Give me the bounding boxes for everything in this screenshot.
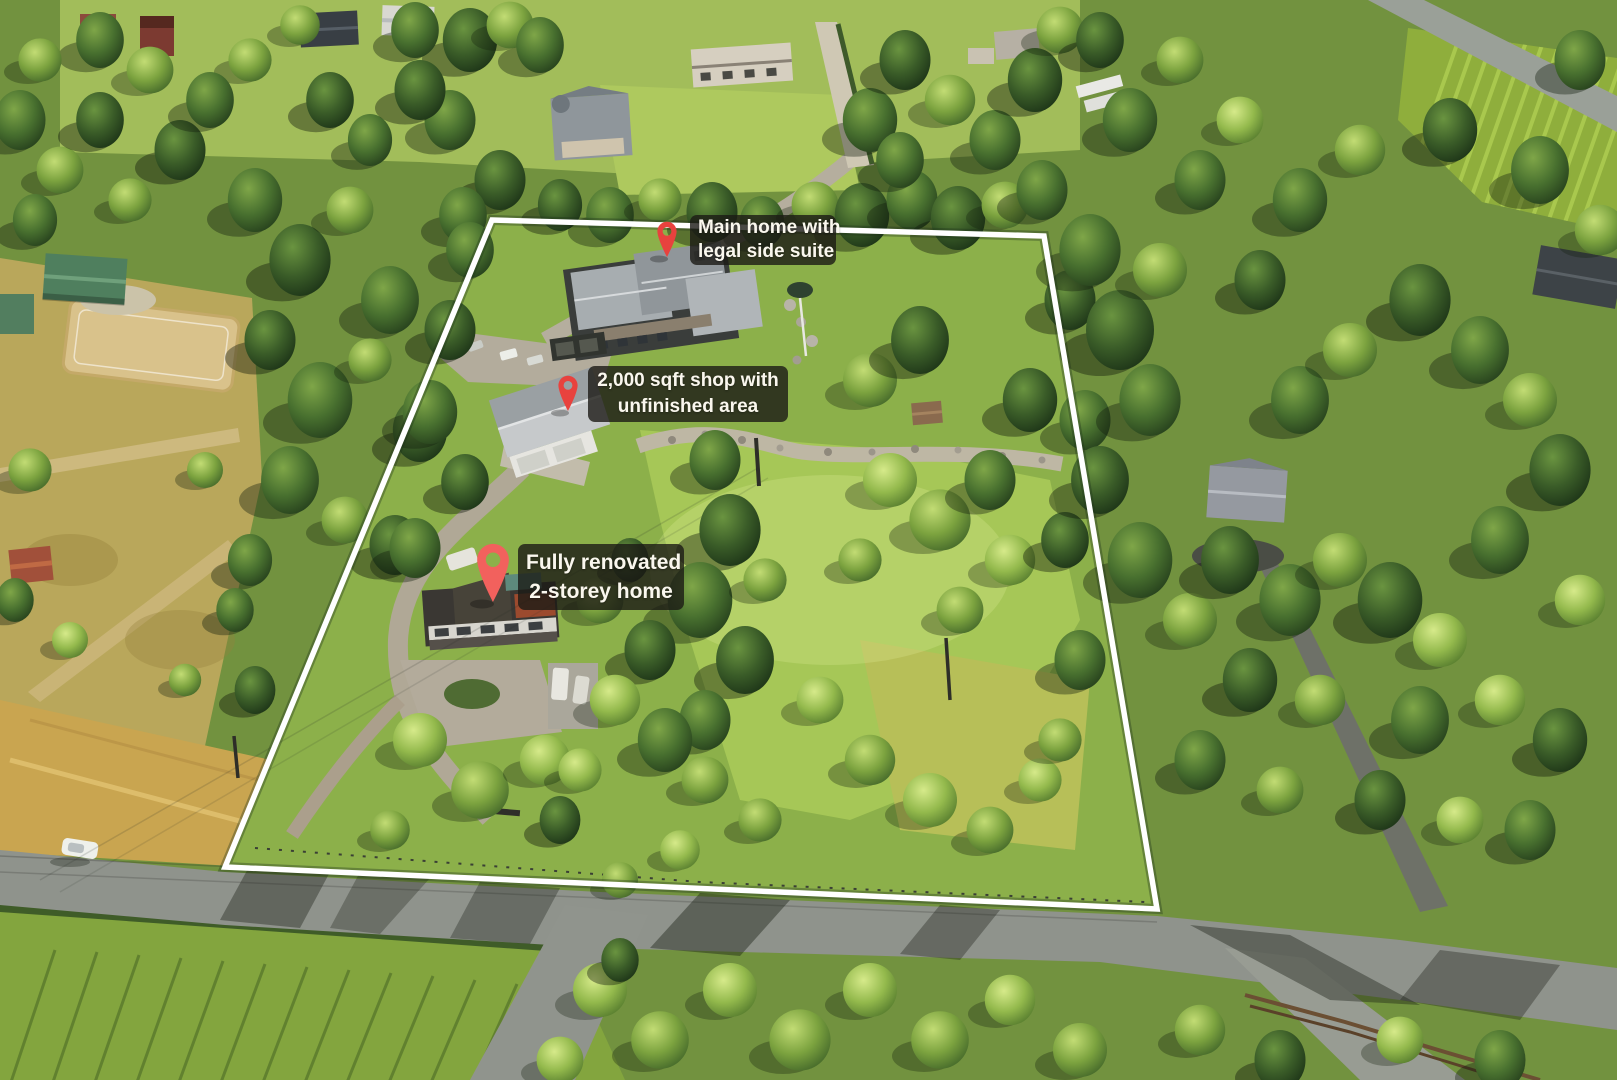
annotation-main-home-line2: legal side suite: [690, 240, 836, 264]
cabin: [968, 48, 994, 64]
annotation-main-home: Main home with legal side suite: [690, 215, 836, 265]
pond: [787, 282, 813, 298]
garden-shed: [911, 401, 943, 426]
annotation-renovated-home: Fully renovated 2-storey home: [518, 544, 684, 610]
annotation-renovated-home-line1: Fully renovated: [518, 548, 684, 577]
green-shed: [0, 294, 34, 334]
pin-shadow: [551, 410, 569, 417]
pin-shadow: [650, 256, 668, 263]
pin-shadow: [470, 600, 494, 609]
house-ranch: [691, 43, 793, 88]
lawn-island: [444, 679, 500, 709]
annotation-shop-line1: 2,000 sqft shop with: [588, 368, 788, 394]
box-truck: [551, 667, 569, 700]
aerial-photo-scene: [0, 0, 1617, 1080]
annotation-main-home-line1: Main home with: [690, 216, 836, 240]
annotation-renovated-home-line2: 2-storey home: [518, 577, 684, 606]
annotation-shop-line2: unfinished area: [588, 394, 788, 420]
annotation-shop: 2,000 sqft shop with unfinished area: [588, 366, 788, 422]
aerial-property-photo: Main home with legal side suite 2,000 sq…: [0, 0, 1617, 1080]
stable-building: [42, 253, 127, 306]
house-victorian: [550, 83, 633, 160]
